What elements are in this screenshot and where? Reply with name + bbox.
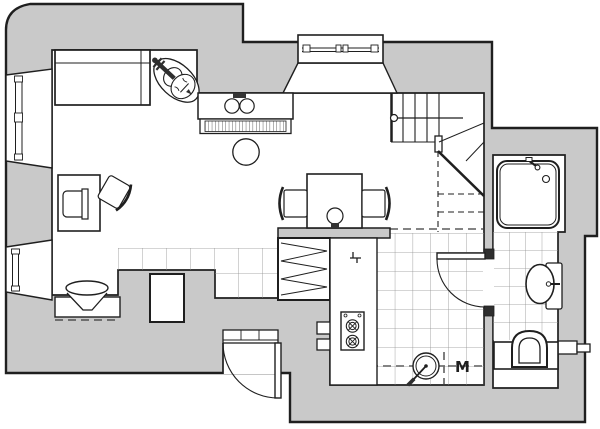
window-handle-icon: [15, 154, 23, 160]
kitchen-half-wall: [278, 228, 390, 238]
piano-stool: [233, 139, 259, 165]
headphone-cup-icon: [225, 99, 239, 113]
table-lamp: [327, 208, 343, 224]
window-handle-icon: [15, 113, 23, 122]
kitchen-counter: [330, 238, 377, 385]
window-handle-icon: [12, 249, 20, 254]
window-handle-icon: [12, 286, 20, 291]
dormer-window: [283, 35, 397, 93]
window-bay-lower-left: [6, 240, 52, 300]
headphone-cup-icon: [240, 99, 254, 113]
cooktop: [341, 312, 364, 350]
window-handle-icon: [303, 45, 310, 52]
window-handle-icon: [336, 45, 341, 52]
door-jamb: [484, 306, 494, 316]
floor-plan: M: [0, 0, 600, 429]
window-handle-icon: [371, 45, 378, 52]
dining-chair-left: [280, 187, 308, 220]
newel-post-icon: [391, 115, 398, 122]
stair-post: [435, 136, 442, 152]
headphones-icon: [233, 93, 246, 98]
desk-chair-back: [82, 189, 88, 219]
floor-plan-drawing: M: [0, 0, 600, 429]
entry-door: [223, 330, 281, 398]
window-handle-icon: [15, 76, 23, 82]
wardrobe: [278, 238, 330, 300]
dining-chair-right: [362, 187, 390, 220]
bathroom-door-leaf: [437, 253, 485, 259]
chimney-void: [150, 274, 184, 322]
entry-step: [223, 330, 278, 343]
bathtub: [497, 158, 559, 229]
window-handle-icon: [343, 45, 348, 52]
entry-door-leaf: [275, 343, 281, 398]
window-bay-upper-left: [6, 69, 52, 168]
washing-machine-mark: M: [455, 358, 470, 376]
sofa: [55, 50, 150, 105]
